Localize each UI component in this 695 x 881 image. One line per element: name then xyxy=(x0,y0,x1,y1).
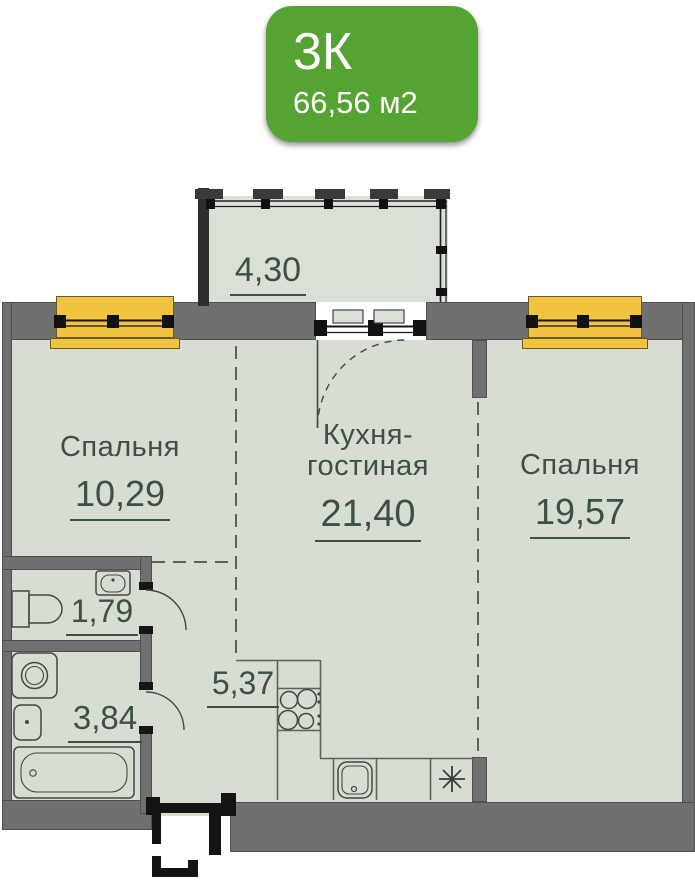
entrance-door xyxy=(146,793,236,877)
balcony-exterior-stubs xyxy=(195,189,450,199)
bathroom-area: 3,84 xyxy=(68,700,142,743)
kitchen-living-name-line1: Кухня- xyxy=(268,420,468,451)
wc-area: 1,79 xyxy=(66,594,138,636)
balcony-area: 4,30 xyxy=(230,252,306,296)
bedroom-left-label: Спальня 10,29 xyxy=(30,432,210,521)
kitchen-living-label: Кухня- гостиная 21,40 xyxy=(268,420,468,542)
window-right-glazing xyxy=(526,315,642,328)
floor-plan: 4,30 Спальня 10,29 Кухня- гостиная 21,40… xyxy=(0,0,695,881)
hallway-label: 5,37 xyxy=(193,666,293,708)
entrance-door-leaf xyxy=(158,803,224,813)
balcony-label: 4,30 xyxy=(208,252,328,296)
wc-door-swing-arc xyxy=(146,590,186,630)
apartment-type: 3К xyxy=(293,24,478,81)
defrost-asterisk-icon xyxy=(439,766,465,792)
kitchen-living-name-line2: гостиная xyxy=(268,451,468,482)
hallway-area: 5,37 xyxy=(207,666,279,708)
kitchen-living-area: 21,40 xyxy=(315,494,420,542)
wc-sink-fixture xyxy=(96,571,130,595)
bedroom-right-area: 19,57 xyxy=(530,493,630,539)
bedroom-right-name: Спальня xyxy=(490,450,670,481)
balcony-door xyxy=(314,310,426,428)
balcony-door-swing-arc xyxy=(318,340,406,428)
apartment-badge: 3К 66,56 м2 xyxy=(266,6,478,142)
window-left-glazing xyxy=(54,315,174,328)
kitchen-sink-fixture xyxy=(338,762,372,798)
bedroom-left-area: 10,29 xyxy=(70,475,170,521)
washing-machine-fixture xyxy=(12,653,57,698)
bedroom-right-label: Спальня 19,57 xyxy=(490,450,670,539)
bedroom-left-name: Спальня xyxy=(30,432,210,463)
bathroom-sink-fixture xyxy=(14,705,41,740)
bathtub-fixture xyxy=(14,747,134,798)
apartment-total-area: 66,56 м2 xyxy=(293,85,478,121)
wc-label: 1,79 xyxy=(52,594,152,636)
bathroom-label: 3,84 xyxy=(55,700,155,743)
